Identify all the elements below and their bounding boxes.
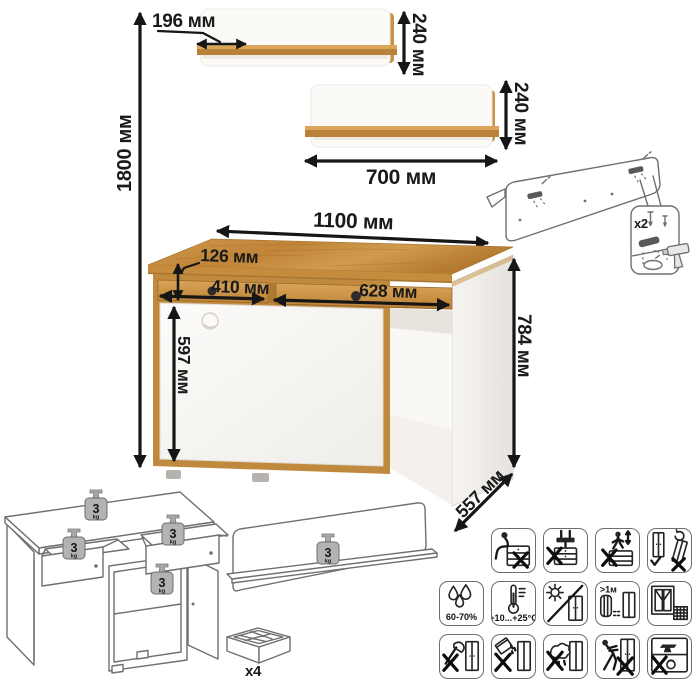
icon-ventilated-room bbox=[647, 581, 692, 626]
icon-no-pouring-liquids bbox=[491, 634, 536, 679]
icon-heat-distance: >1м bbox=[595, 581, 640, 626]
icon-no-wet-cloth bbox=[543, 634, 588, 679]
icon-no-sitting bbox=[491, 528, 536, 573]
icon-humidity: 60-70% bbox=[439, 581, 484, 626]
temperature-label: +10...+25°C bbox=[492, 613, 535, 623]
icon-temperature: +10...+25°C bbox=[491, 581, 536, 626]
care-icons-grid: 60-70% +10...+25°C >1 bbox=[0, 0, 700, 684]
heat-distance-label: >1м bbox=[600, 585, 617, 595]
icon-no-standing bbox=[595, 528, 640, 573]
humidity-label: 60-70% bbox=[446, 612, 477, 622]
icon-no-pushing bbox=[595, 634, 640, 679]
icon-no-sharp-tools bbox=[439, 634, 484, 679]
icon-no-overloading bbox=[647, 634, 692, 679]
icon-carry-upright bbox=[647, 528, 692, 573]
icon-no-clamping bbox=[543, 528, 588, 573]
icon-no-direct-sunlight bbox=[543, 581, 588, 626]
furniture-dimension-diagram: 1800 мм 196 мм 240 мм 240 мм 700 мм bbox=[0, 0, 700, 684]
